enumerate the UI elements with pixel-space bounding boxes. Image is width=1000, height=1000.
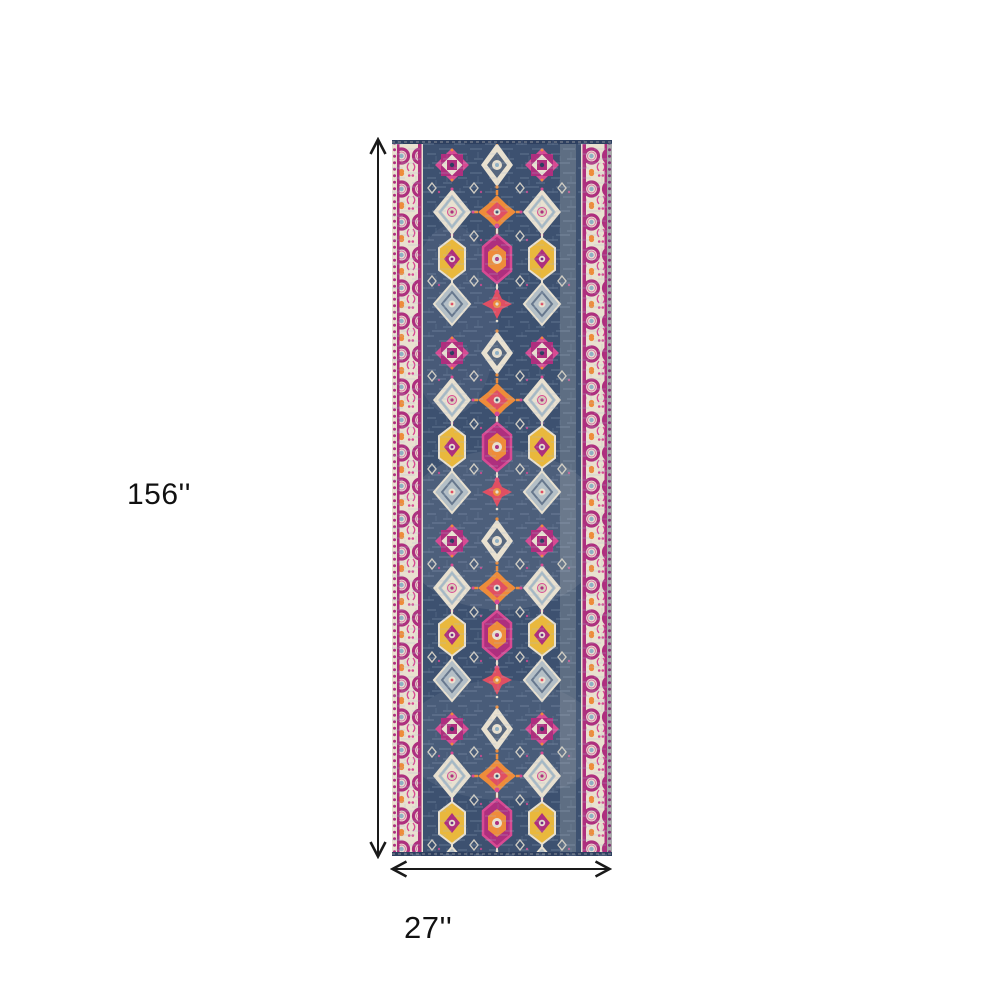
rug-image — [392, 140, 612, 856]
width-dimension-arrow — [390, 858, 612, 880]
product-dimension-image: 156'' 27'' — [0, 0, 1000, 1000]
height-dimension-arrow — [366, 137, 390, 859]
height-dimension-label: 156'' — [127, 480, 191, 510]
rug-distress-texture — [392, 140, 612, 856]
width-dimension-label: 27'' — [404, 912, 452, 943]
